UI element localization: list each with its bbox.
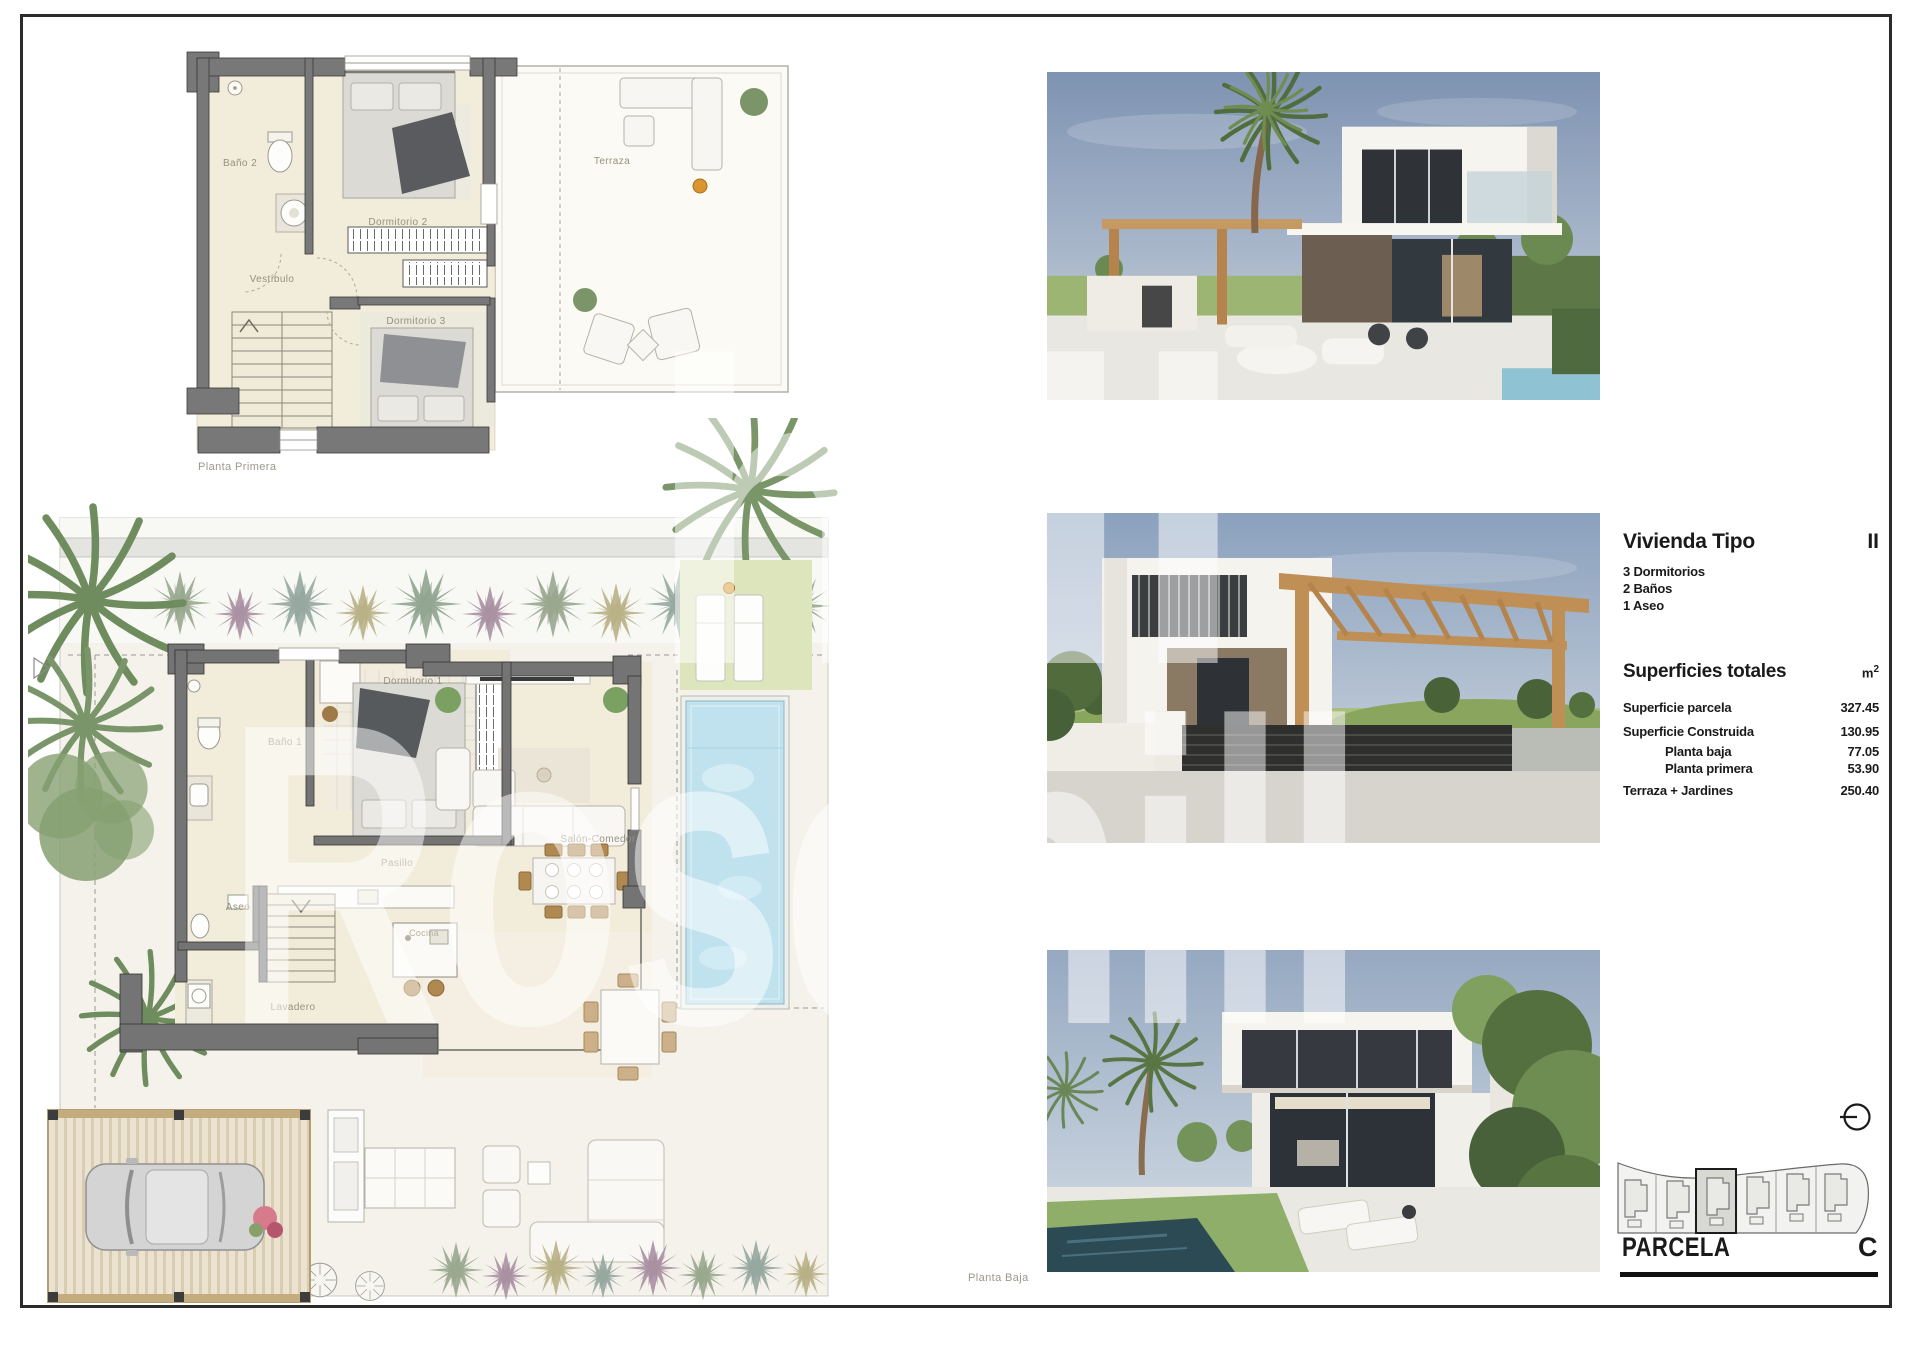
area-row: Superficie parcela 327.45 — [1623, 699, 1879, 716]
stairs-upper — [232, 312, 332, 428]
area-label: Superficie parcela — [1623, 699, 1731, 716]
unit-type-value: II — [1867, 530, 1879, 554]
north-compass-icon — [1838, 1100, 1872, 1134]
feature-aseo: 1 Aseo — [1623, 597, 1879, 614]
storage-cabinet — [328, 1110, 364, 1222]
villa-render-photo-3 — [1047, 950, 1600, 1272]
area-row: Terraza + Jardines 250.40 — [1623, 782, 1879, 799]
parcela-row: PARCELA C — [1622, 1232, 1878, 1263]
wardrobe-2-hatch — [405, 262, 485, 285]
room-label-cocina: Cocina — [409, 928, 439, 938]
area-label: Planta primera — [1623, 760, 1753, 777]
unit-m2: m2 — [1862, 664, 1879, 680]
unit-features: 3 Dormitorios 2 Baños 1 Aseo — [1623, 563, 1879, 614]
plan-sheet: Terraza — [0, 0, 1920, 1357]
room-label-bano1: Baño 1 — [268, 737, 302, 748]
parcela-underline — [1620, 1272, 1878, 1277]
room-label-terraza: Terraza — [594, 156, 630, 167]
room-label-salon: Salón-Comedor — [560, 834, 636, 845]
area-label: Superficie Construida — [1623, 723, 1754, 740]
room-label-pasillo: Pasillo — [381, 858, 413, 869]
area-value: 250.40 — [1840, 782, 1879, 799]
room-label-lavadero: Lavadero — [271, 1002, 316, 1013]
room-label-bano2: Baño 2 — [223, 158, 257, 169]
site-plan-diagram — [1608, 1148, 1878, 1240]
floor-plan-planta-baja: Baño 1 Dormitorio 1 Pasillo Salón-Comedo… — [28, 418, 838, 1313]
caption-planta-baja: Planta Baja — [968, 1272, 1029, 1284]
stairs-ground — [267, 894, 335, 982]
area-row: Planta primera 53.90 — [1623, 760, 1879, 777]
feature-banos: 2 Baños — [1623, 580, 1879, 597]
room-label-aseo: Aseo — [226, 902, 250, 913]
terrace-area: Terraza — [495, 66, 788, 392]
areas-table: Superficie parcela 327.45 Superficie Con… — [1623, 699, 1879, 799]
room-label-dormitorio1: Dormitorio 1 — [383, 676, 442, 687]
feature-dormitorios: 3 Dormitorios — [1623, 563, 1879, 580]
area-value: 327.45 — [1840, 699, 1879, 716]
area-value: 53.90 — [1847, 760, 1879, 777]
room-label-dormitorio2: Dormitorio 2 — [368, 217, 427, 228]
dormitorio2-furniture — [343, 72, 471, 200]
villa-render-photo-2 — [1047, 513, 1600, 843]
area-value: 77.05 — [1847, 743, 1879, 760]
area-row: Planta baja 77.05 — [1623, 743, 1879, 760]
carport — [48, 1110, 310, 1302]
room-label-dormitorio3: Dormitorio 3 — [386, 316, 445, 327]
area-label: Planta baja — [1623, 743, 1731, 760]
wardrobe-1-hatch — [350, 229, 485, 251]
villa-render-photo-1 — [1047, 72, 1600, 400]
area-value: 130.95 — [1840, 723, 1879, 740]
areas-heading: Superficies totales — [1623, 661, 1786, 683]
room-label-vestibulo: Vestíbulo — [250, 274, 295, 285]
floor-plan-planta-primera: Terraza — [140, 36, 810, 461]
pool — [681, 696, 789, 1009]
unit-type-label: Vivienda Tipo — [1623, 530, 1755, 554]
lawn-loungers — [680, 560, 812, 690]
parcela-value: C — [1858, 1232, 1878, 1263]
unit-info-panel: Vivienda Tipo II 3 Dormitorios 2 Baños 1… — [1623, 530, 1879, 799]
area-label: Terraza + Jardines — [1623, 782, 1733, 799]
dormitorio3-furniture — [360, 312, 494, 432]
parcela-label: PARCELA — [1622, 1232, 1730, 1263]
car-top-view — [86, 1158, 264, 1256]
area-row: Superficie Construida 130.95 — [1623, 723, 1879, 740]
